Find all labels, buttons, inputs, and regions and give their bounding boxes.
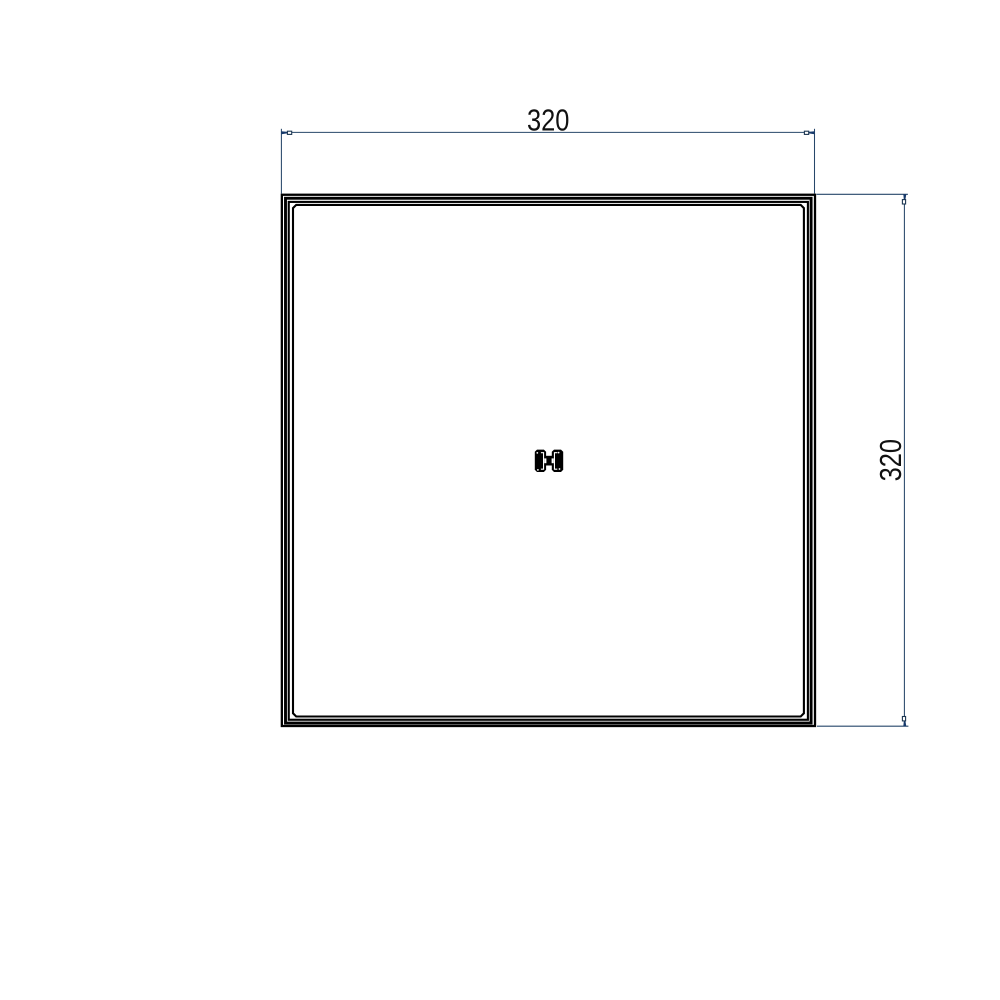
svg-text:320: 320	[874, 439, 909, 481]
svg-text:320: 320	[527, 103, 569, 138]
